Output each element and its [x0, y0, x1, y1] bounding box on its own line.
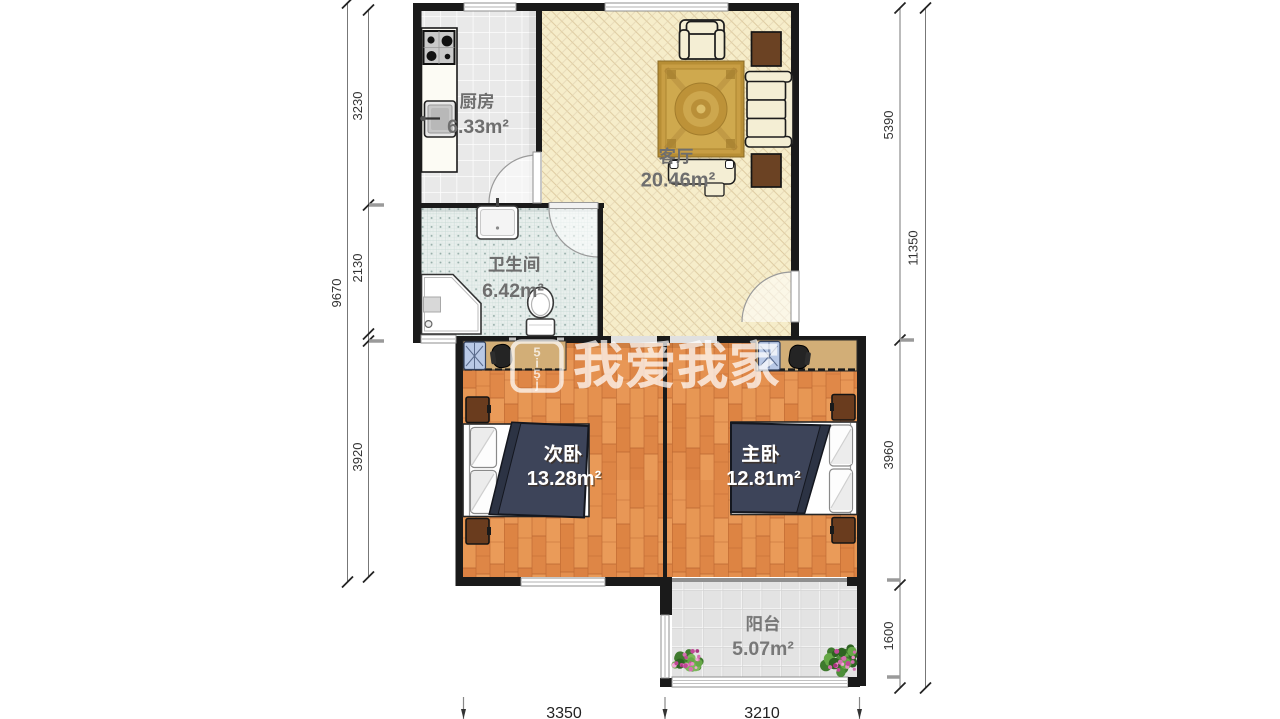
- svg-text:2130: 2130: [350, 254, 365, 283]
- svg-text:3210: 3210: [744, 705, 780, 719]
- svg-text:5.07m²: 5.07m²: [732, 638, 794, 660]
- svg-text:13.28m²: 13.28m²: [527, 468, 602, 490]
- svg-text:6.33m²: 6.33m²: [447, 116, 509, 138]
- svg-text:3920: 3920: [350, 443, 365, 472]
- svg-text:6.42m²: 6.42m²: [482, 280, 544, 302]
- svg-text:j: j: [534, 377, 539, 392]
- svg-text:1600: 1600: [881, 622, 896, 651]
- svg-text:12.81m²: 12.81m²: [726, 468, 801, 490]
- svg-text:9670: 9670: [329, 279, 344, 308]
- svg-text:3960: 3960: [881, 441, 896, 470]
- svg-text:11350: 11350: [906, 230, 921, 265]
- svg-text:3230: 3230: [350, 92, 365, 121]
- svg-text:3350: 3350: [546, 705, 582, 719]
- svg-text:5390: 5390: [881, 111, 896, 140]
- svg-text:20.46m²: 20.46m²: [641, 170, 716, 192]
